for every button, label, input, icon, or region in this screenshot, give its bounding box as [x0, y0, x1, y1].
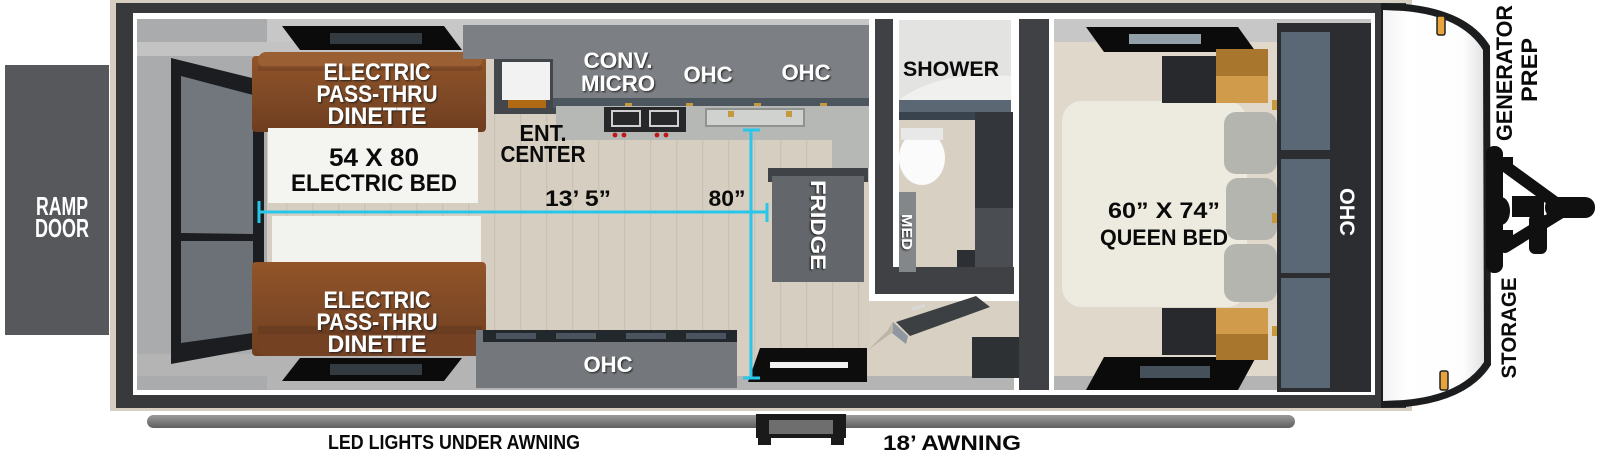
svg-text:54 X 80: 54 X 80: [329, 144, 419, 172]
svg-text:PREP: PREP: [1517, 38, 1542, 102]
svg-text:CENTER: CENTER: [501, 141, 586, 167]
svg-text:18’ AWNING: 18’ AWNING: [883, 431, 1021, 455]
svg-text:QUEEN BED: QUEEN BED: [1100, 225, 1228, 250]
svg-text:GENERATOR: GENERATOR: [1492, 5, 1517, 141]
svg-text:60” X 74”: 60” X 74”: [1108, 198, 1220, 223]
svg-text:OHC: OHC: [782, 60, 831, 85]
svg-text:DOOR: DOOR: [35, 213, 89, 243]
svg-text:MICRO: MICRO: [581, 71, 655, 96]
svg-text:MED: MED: [898, 214, 915, 250]
svg-text:OHC: OHC: [584, 352, 633, 377]
svg-text:SHOWER: SHOWER: [903, 58, 999, 81]
svg-text:80”: 80”: [709, 186, 746, 211]
svg-text:CONV.: CONV.: [584, 48, 653, 73]
svg-text:DINETTE: DINETTE: [328, 331, 427, 358]
svg-text:OHC: OHC: [1335, 188, 1358, 236]
svg-text:DINETTE: DINETTE: [328, 103, 427, 130]
svg-text:FRIDGE: FRIDGE: [806, 180, 829, 270]
svg-text:OHC: OHC: [684, 62, 733, 87]
svg-text:STORAGE: STORAGE: [1498, 278, 1521, 379]
svg-text:13’ 5”: 13’ 5”: [545, 186, 611, 211]
svg-text:ELECTRIC BED: ELECTRIC BED: [291, 170, 457, 197]
svg-text:LED LIGHTS UNDER AWNING: LED LIGHTS UNDER AWNING: [328, 432, 580, 454]
